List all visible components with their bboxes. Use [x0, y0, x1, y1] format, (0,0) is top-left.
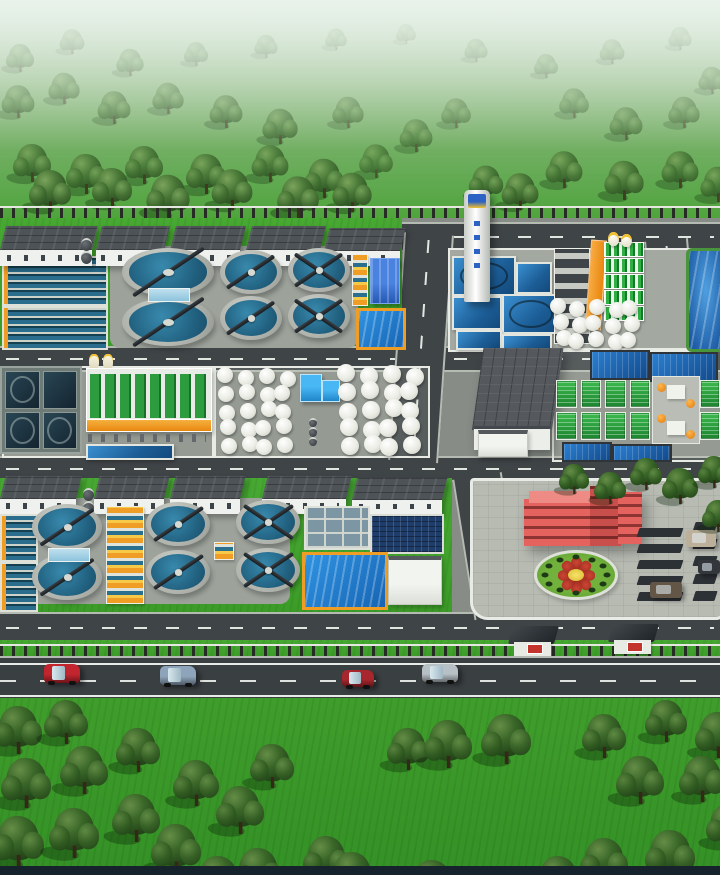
tree — [127, 144, 161, 184]
storage-tank-field — [338, 366, 422, 454]
car — [422, 664, 458, 682]
basin-grid — [304, 506, 370, 550]
tree — [443, 97, 470, 128]
clarifier-tank — [236, 500, 300, 544]
tree — [466, 38, 487, 62]
tree — [606, 159, 641, 200]
tree — [700, 65, 720, 94]
water-basin — [148, 288, 190, 302]
clarifier-tank — [220, 296, 282, 340]
clarifier-tank — [146, 550, 210, 594]
parked-vehicle — [686, 530, 716, 547]
tree — [118, 47, 142, 76]
pump-row — [88, 434, 206, 442]
pump-corridor — [652, 376, 700, 444]
process-equipment — [106, 506, 144, 604]
tree — [503, 171, 536, 210]
tree — [211, 94, 241, 128]
tree — [601, 38, 623, 64]
mist-overlay — [0, 0, 720, 150]
tree — [397, 23, 415, 44]
tree — [61, 28, 83, 54]
tree — [334, 95, 362, 128]
membrane-rack-grid — [700, 380, 720, 440]
tree — [670, 26, 691, 50]
flower-garden — [534, 550, 618, 600]
water-basin — [590, 350, 650, 380]
water-basin — [562, 442, 612, 462]
tree — [547, 149, 580, 188]
utility-building — [478, 430, 528, 457]
utility-building — [388, 556, 442, 605]
tree — [94, 166, 130, 208]
tree — [326, 27, 345, 50]
sphere-tanks — [76, 238, 96, 264]
tree — [3, 84, 33, 118]
process-equipment — [214, 542, 234, 560]
clarifier-tank — [32, 504, 102, 550]
biofilter-rack — [604, 274, 644, 289]
tree — [401, 118, 431, 152]
chemical-container — [300, 374, 322, 402]
clarifier-tank — [146, 502, 210, 546]
grass-field — [0, 698, 720, 875]
tree — [663, 149, 696, 188]
covered-basin — [456, 330, 502, 350]
tree — [15, 142, 49, 182]
clarifier-tank — [288, 294, 350, 338]
clarifier-tank — [288, 248, 350, 292]
wastewater-plant-aerial-render — [0, 0, 720, 875]
tree — [7, 43, 32, 72]
tree — [702, 165, 720, 202]
solar-panel-basin — [370, 514, 444, 554]
water-basin — [356, 308, 406, 350]
tree — [361, 143, 391, 178]
plant-tower — [464, 190, 490, 302]
tree — [670, 95, 698, 128]
tree — [214, 167, 251, 210]
car — [342, 670, 374, 687]
car — [160, 666, 196, 685]
storage-tank-field — [218, 368, 294, 454]
tree — [99, 90, 129, 124]
parked-vehicle — [698, 560, 720, 574]
tree — [611, 106, 641, 140]
tree — [535, 53, 557, 78]
filter-rack-building — [86, 368, 212, 432]
water-basin — [302, 552, 388, 610]
sphere-tanks — [298, 418, 328, 446]
tree — [185, 41, 207, 66]
covered-basin — [86, 444, 174, 460]
biofilter-rack — [604, 258, 644, 273]
storage-tank-field — [552, 300, 640, 348]
water-basin — [612, 444, 672, 462]
aeration-basin — [2, 306, 108, 350]
membrane-rack-grid — [556, 380, 650, 440]
tree — [50, 71, 78, 104]
tree — [188, 152, 224, 194]
dome-tanks — [608, 232, 632, 248]
tree — [68, 152, 104, 194]
tree — [256, 34, 277, 58]
water-basin — [48, 548, 90, 562]
aeration-basin — [0, 562, 38, 612]
parked-vehicle — [650, 582, 682, 598]
clarifier-tank — [220, 250, 282, 294]
image-edge-band — [0, 866, 720, 875]
car — [44, 664, 80, 683]
reservoir-pond — [686, 248, 720, 352]
clarifier-tank — [122, 298, 214, 346]
tree — [253, 143, 286, 182]
administration-building — [524, 486, 642, 546]
tree — [264, 107, 296, 144]
process-equipment — [352, 254, 368, 306]
anaerobic-basins — [0, 366, 82, 454]
clarifier-tank — [236, 548, 300, 592]
tree — [306, 157, 341, 198]
blue-building — [370, 258, 400, 304]
gate-house — [508, 626, 554, 658]
covered-basin — [516, 262, 552, 294]
tree — [561, 87, 588, 118]
tree — [154, 81, 182, 114]
gate-house — [608, 624, 654, 656]
